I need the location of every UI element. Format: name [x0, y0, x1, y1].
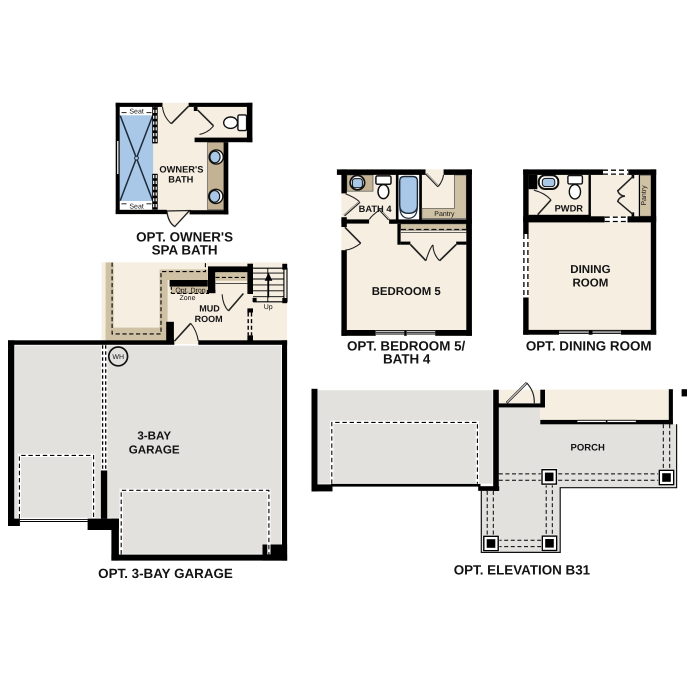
svg-text:ROOM: ROOM: [195, 314, 223, 324]
svg-text:Seat: Seat: [129, 204, 143, 211]
svg-text:Pantry: Pantry: [434, 211, 455, 218]
svg-text:3-BAY: 3-BAY: [137, 429, 171, 442]
svg-text:BATH 4: BATH 4: [383, 351, 431, 366]
svg-text:BATH: BATH: [168, 174, 193, 184]
svg-text:OPT. ELEVATION B31: OPT. ELEVATION B31: [454, 562, 591, 577]
svg-text:OWNER'S: OWNER'S: [159, 165, 203, 175]
svg-text:Up: Up: [264, 304, 273, 311]
svg-text:Pantry: Pantry: [641, 185, 648, 206]
svg-text:MUD: MUD: [199, 303, 220, 313]
svg-text:Zone: Zone: [180, 295, 196, 302]
svg-text:GARAGE: GARAGE: [129, 444, 180, 457]
svg-text:OPT. 3-BAY GARAGE: OPT. 3-BAY GARAGE: [98, 566, 233, 581]
svg-text:DINING: DINING: [570, 264, 610, 276]
svg-text:SPA BATH: SPA BATH: [152, 243, 218, 258]
svg-text:BATH 4: BATH 4: [359, 204, 393, 214]
svg-text:PORCH: PORCH: [571, 442, 605, 453]
svg-text:WH: WH: [112, 354, 124, 361]
svg-text:OPT. DINING ROOM: OPT. DINING ROOM: [526, 338, 652, 353]
svg-text:ROOM: ROOM: [573, 277, 609, 289]
svg-text:BEDROOM 5: BEDROOM 5: [372, 286, 442, 298]
svg-text:PWDR: PWDR: [555, 203, 584, 213]
svg-text:Seat: Seat: [129, 108, 143, 115]
svg-text:Opt. Drop: Opt. Drop: [175, 287, 205, 294]
